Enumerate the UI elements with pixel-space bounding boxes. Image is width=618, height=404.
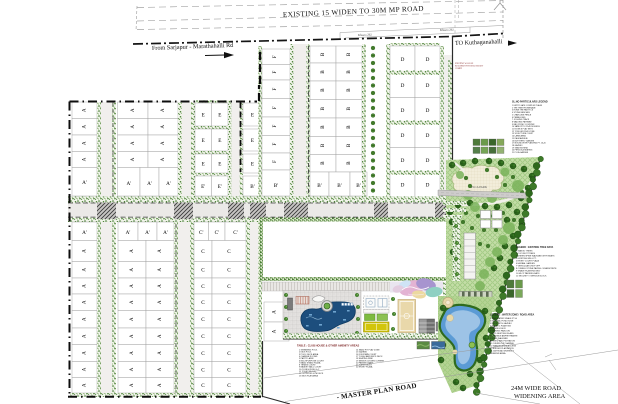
svg-text:B: B xyxy=(346,70,352,74)
svg-text:Khasra 292: Khasra 292 xyxy=(358,33,372,37)
svg-text:F: F xyxy=(272,143,278,146)
svg-text:E: E xyxy=(202,138,205,144)
svg-text:B: B xyxy=(320,52,326,56)
svg-text:A': A' xyxy=(147,181,152,187)
svg-text:F: F xyxy=(272,55,278,58)
svg-text:C: C xyxy=(201,317,205,323)
svg-text:A: A xyxy=(157,249,163,253)
svg-text:E: E xyxy=(251,138,254,144)
svg-text:C: C xyxy=(201,351,205,357)
svg-text:WIDENING AREA: WIDENING AREA xyxy=(514,393,566,400)
svg-text:RESERVE AREA: RESERVE AREA xyxy=(490,352,506,355)
svg-text:A: A xyxy=(82,300,88,304)
svg-text:C: C xyxy=(227,334,231,340)
svg-text:A: A xyxy=(160,125,166,129)
svg-text:A: A xyxy=(82,157,88,161)
svg-text:PLCA PARK: PLCA PARK xyxy=(471,185,488,189)
svg-text:B: B xyxy=(346,125,352,129)
svg-text:A: A xyxy=(129,351,135,355)
svg-text:A': A' xyxy=(166,181,171,187)
svg-text:C': C' xyxy=(199,230,203,236)
svg-text:C: C xyxy=(201,249,205,255)
svg-text:COMPD: COMPD xyxy=(455,68,463,70)
svg-text:A: A xyxy=(82,383,88,387)
svg-text:A: A xyxy=(130,141,136,145)
svg-text:B: B xyxy=(346,88,352,92)
svg-text:A: A xyxy=(129,317,135,321)
svg-text:A': A' xyxy=(82,230,87,236)
svg-text:E: E xyxy=(218,138,221,144)
svg-text:C: C xyxy=(227,383,231,389)
svg-text:A: A xyxy=(82,367,88,371)
svg-text:A: A xyxy=(160,157,166,161)
svg-text:A: A xyxy=(129,334,135,338)
svg-text:C: C xyxy=(227,300,231,306)
svg-text:B: B xyxy=(320,88,326,92)
svg-text:A: A xyxy=(130,157,136,161)
svg-text:B: B xyxy=(320,143,326,147)
svg-text:A: A xyxy=(157,284,163,288)
svg-text:C: C xyxy=(201,367,205,373)
svg-text:A: A xyxy=(157,383,163,387)
svg-text:A: A xyxy=(157,300,163,304)
svg-text:22 ENTRY PLAZA: 22 ENTRY PLAZA xyxy=(356,366,373,369)
svg-text:B: B xyxy=(346,143,352,147)
svg-text:E: E xyxy=(202,161,205,167)
svg-text:C: C xyxy=(227,284,231,290)
svg-text:C': C' xyxy=(233,230,237,236)
svg-text:C': C' xyxy=(215,230,219,236)
svg-text:Khasra 292: Khasra 292 xyxy=(440,28,454,32)
svg-text:D: D xyxy=(426,133,430,139)
svg-text:24M WIDE ROAD: 24M WIDE ROAD xyxy=(511,385,561,392)
svg-text:A: A xyxy=(82,284,88,288)
svg-text:C: C xyxy=(227,317,231,323)
svg-text:D: D xyxy=(401,158,405,164)
svg-text:C: C xyxy=(201,334,205,340)
svg-text:A: A xyxy=(160,141,166,145)
svg-text:C: C xyxy=(201,268,205,274)
svg-text:A: A xyxy=(157,351,163,355)
svg-text:A: A xyxy=(129,383,135,387)
svg-text:SL.NO PARTICULARS LEGEND: SL.NO PARTICULARS LEGEND xyxy=(512,101,548,104)
svg-text:C: C xyxy=(227,268,231,274)
svg-text:A: A xyxy=(129,367,135,371)
svg-text:B: B xyxy=(320,125,326,129)
svg-text:C: C xyxy=(201,284,205,290)
svg-text:A: A xyxy=(129,268,135,272)
svg-text:LEGEND : WATER ZONE / ROAD A: LEGEND : WATER ZONE / ROAD AREA xyxy=(490,314,534,317)
svg-text:C: C xyxy=(201,300,205,306)
svg-text:A': A' xyxy=(126,230,131,236)
svg-text:E: E xyxy=(218,161,221,167)
svg-text:B': B' xyxy=(356,183,360,189)
svg-text:C: C xyxy=(227,351,231,357)
svg-text:A': A' xyxy=(163,230,168,236)
svg-text:B: B xyxy=(346,52,352,56)
svg-text:D: D xyxy=(401,183,405,189)
svg-text:B': B' xyxy=(337,183,341,189)
svg-text:F: F xyxy=(272,106,278,109)
svg-text:B': B' xyxy=(250,184,254,190)
svg-text:F: F xyxy=(272,160,278,163)
svg-text:E': E' xyxy=(218,184,222,190)
svg-text:21 PLCA GARDEN: 21 PLCA GARDEN xyxy=(512,151,529,154)
svg-text:B': B' xyxy=(317,183,321,189)
svg-text:RETAINED WITH EXG HEIGHT: RETAINED WITH EXG HEIGHT xyxy=(455,65,484,68)
svg-text:C: C xyxy=(227,367,231,373)
svg-text:C: C xyxy=(201,383,205,389)
svg-text:A: A xyxy=(82,249,88,253)
svg-text:D: D xyxy=(401,133,405,139)
svg-text:A: A xyxy=(82,268,88,272)
svg-text:F: F xyxy=(272,88,278,91)
svg-text:A: A xyxy=(82,108,88,112)
svg-text:A: A xyxy=(129,284,135,288)
svg-text:E': E' xyxy=(201,184,205,190)
svg-text:A': A' xyxy=(82,180,87,186)
svg-text:A: A xyxy=(82,141,88,145)
svg-text:B: B xyxy=(346,107,352,111)
svg-text:A: A xyxy=(157,334,163,338)
svg-text:E: E xyxy=(251,161,254,167)
svg-text:LEGEND : EXISTING TREE DATA: LEGEND : EXISTING TREE DATA xyxy=(516,246,554,249)
svg-text:B': B' xyxy=(274,183,278,189)
svg-text:A: A xyxy=(160,108,166,112)
svg-text:D: D xyxy=(426,57,430,63)
svg-text:A: A xyxy=(272,329,278,333)
svg-text:E: E xyxy=(251,112,254,118)
svg-text:A: A xyxy=(129,249,135,253)
svg-text:A: A xyxy=(82,351,88,355)
svg-text:A': A' xyxy=(126,181,131,187)
svg-text:A: A xyxy=(157,268,163,272)
svg-text:B: B xyxy=(320,107,326,111)
svg-text:A': A' xyxy=(145,230,150,236)
svg-text:TABLE : CLUB HOUSE & OTHER AME: TABLE : CLUB HOUSE & OTHER AMENITY AREAS xyxy=(297,344,360,348)
svg-text:D: D xyxy=(401,83,405,89)
svg-text:A: A xyxy=(272,310,278,314)
svg-text:D: D xyxy=(426,158,430,164)
svg-text:A: A xyxy=(157,367,163,371)
svg-text:C: C xyxy=(227,249,231,255)
svg-text:D: D xyxy=(426,83,430,89)
svg-text:E: E xyxy=(218,112,221,118)
svg-text:F: F xyxy=(272,125,278,128)
svg-text:F: F xyxy=(272,71,278,74)
svg-text:A: A xyxy=(130,108,136,112)
svg-text:13 KIDS PLAY AREA: 13 KIDS PLAY AREA xyxy=(299,374,318,377)
svg-text:D: D xyxy=(426,108,430,114)
svg-text:A: A xyxy=(82,334,88,338)
svg-text:A: A xyxy=(129,300,135,304)
svg-text:E: E xyxy=(202,112,205,118)
svg-text:D: D xyxy=(426,183,430,189)
svg-text:B: B xyxy=(320,70,326,74)
svg-text:A: A xyxy=(82,125,88,129)
svg-text:B: B xyxy=(320,161,326,165)
svg-text:B: B xyxy=(346,161,352,165)
svg-text:EXISTING WALL BE: EXISTING WALL BE xyxy=(455,62,474,65)
svg-text:11 SECURITY / SERVICE BLOCK: 11 SECURITY / SERVICE BLOCK xyxy=(516,276,547,278)
svg-text:D: D xyxy=(401,57,405,63)
svg-text:D: D xyxy=(401,108,405,114)
svg-text:A: A xyxy=(157,317,163,321)
svg-text:A: A xyxy=(82,317,88,321)
svg-text:A: A xyxy=(130,125,136,129)
